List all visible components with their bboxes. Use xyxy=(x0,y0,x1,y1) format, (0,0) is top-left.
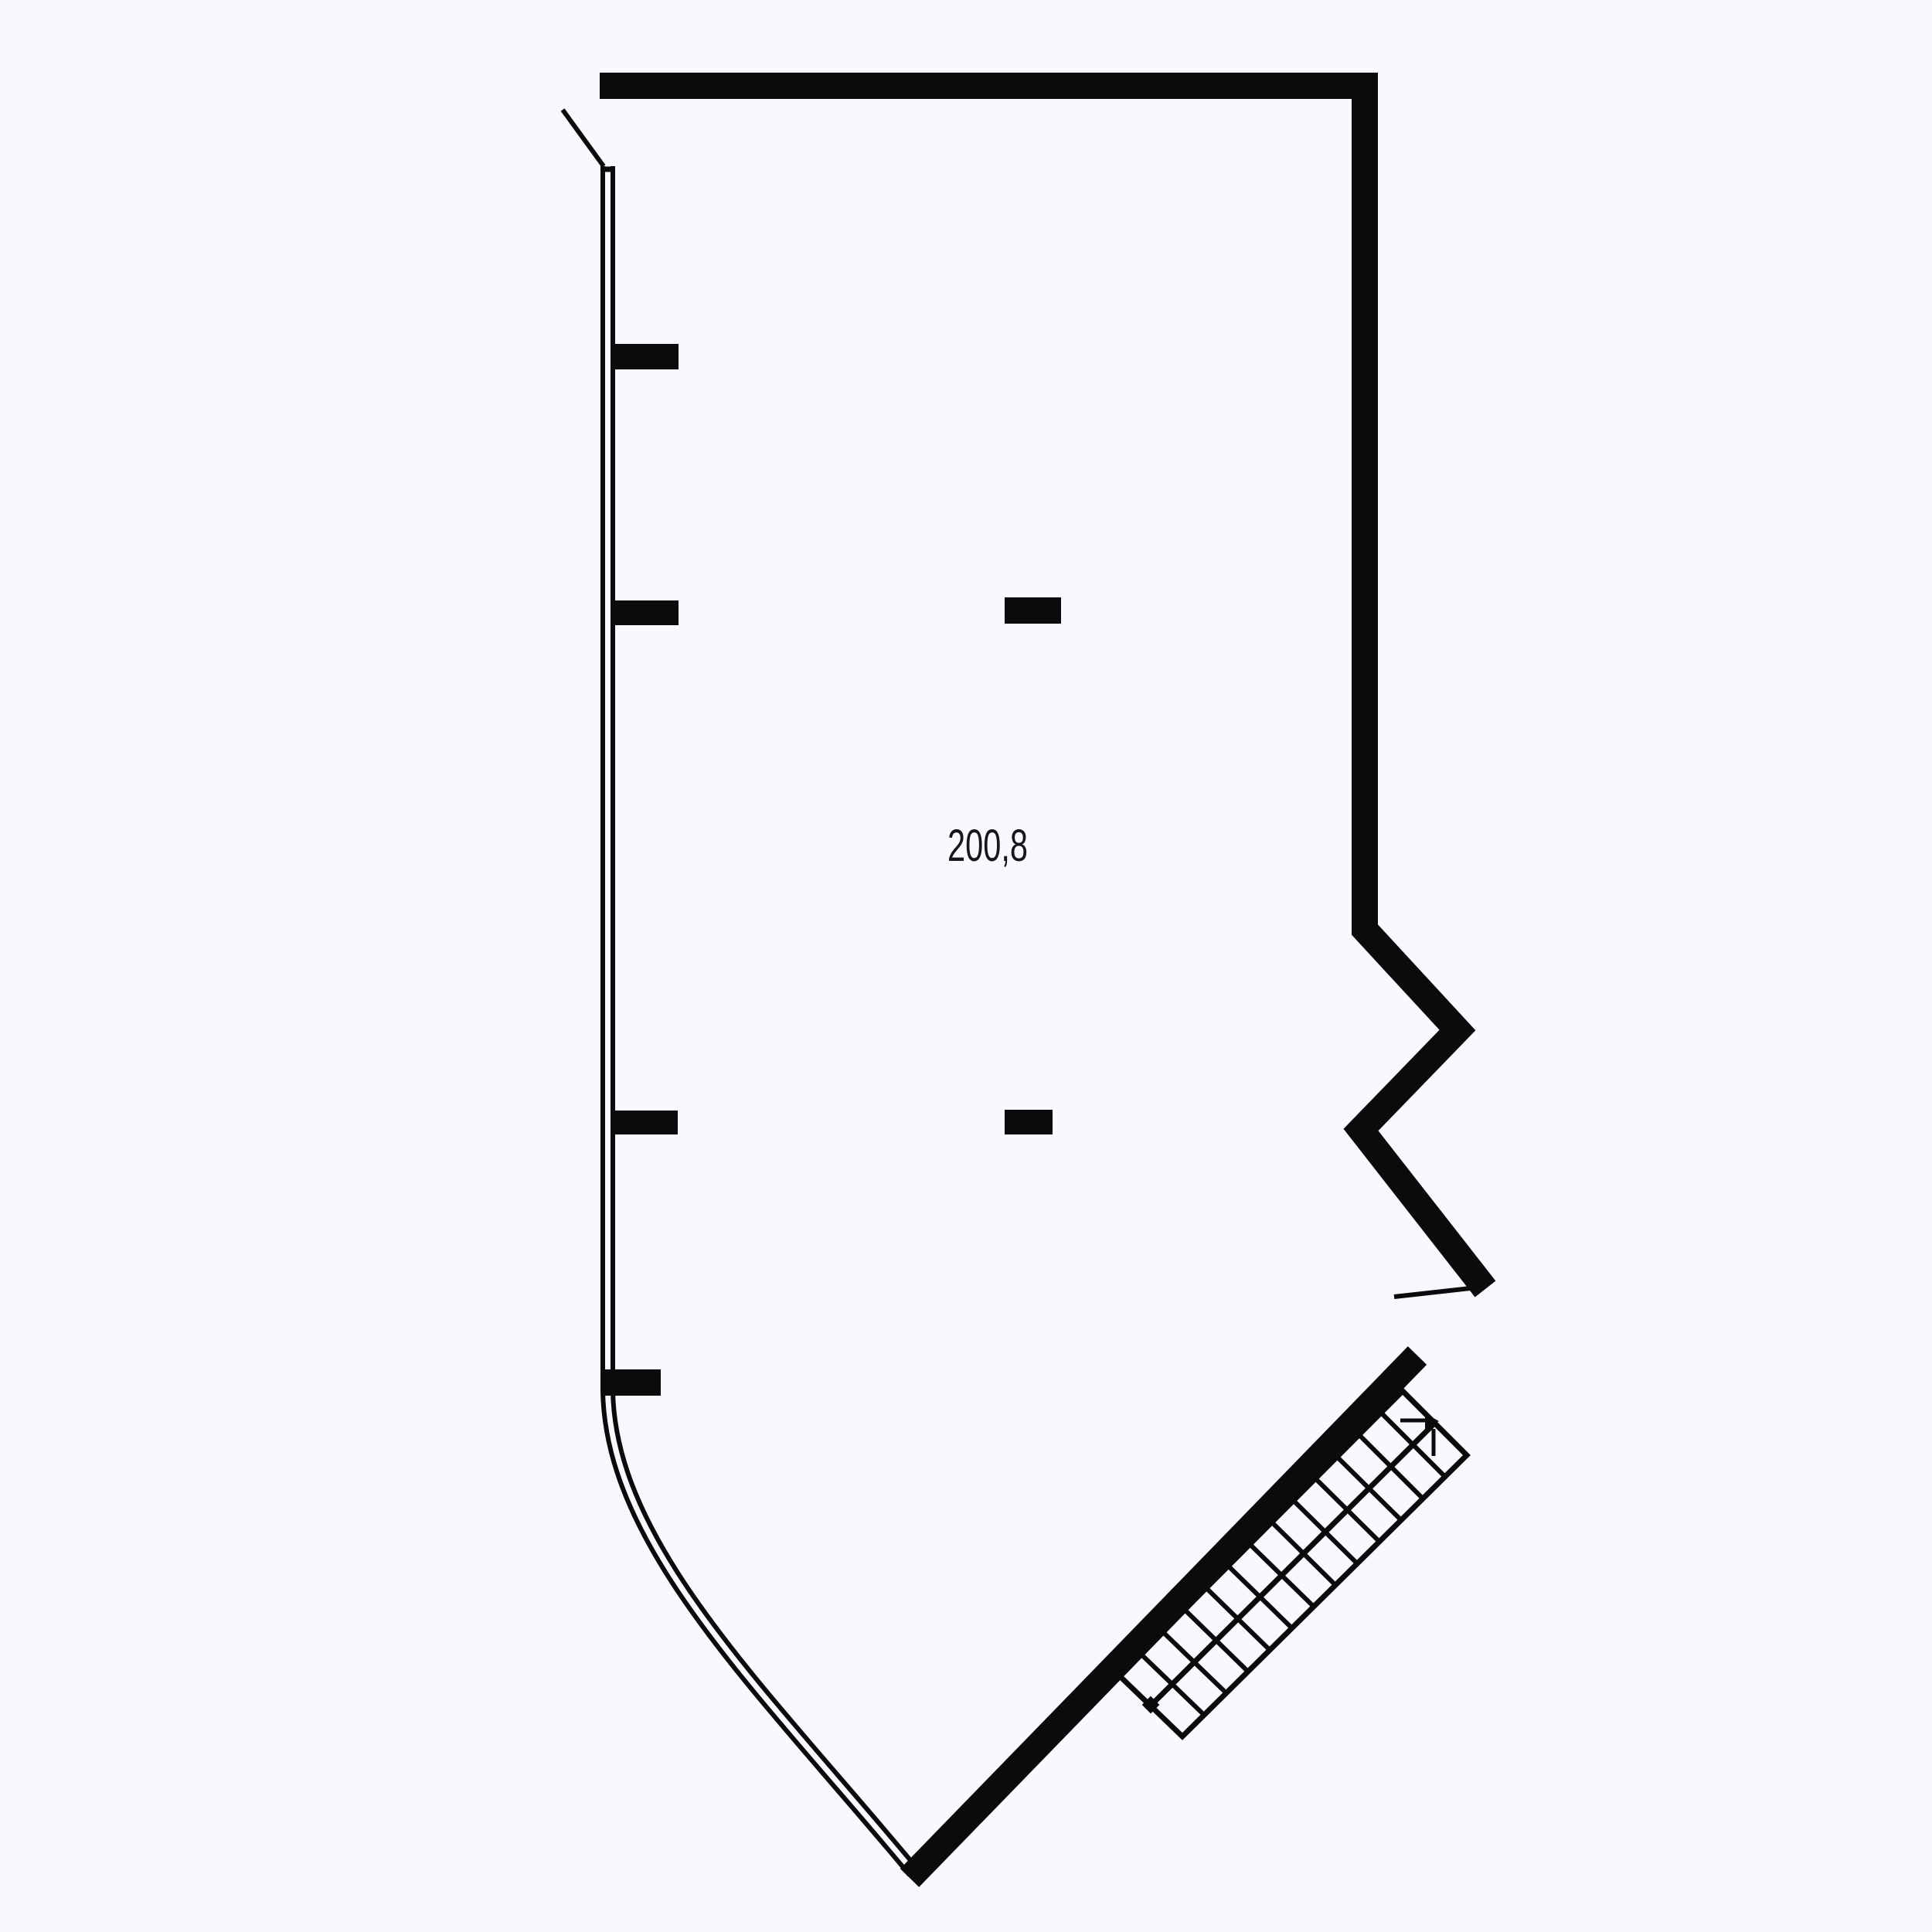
column-pier xyxy=(614,1111,678,1134)
floor-plan-page: 200,8 xyxy=(0,0,1932,1932)
column-pier xyxy=(613,600,679,625)
area-label: 200,8 xyxy=(947,821,1028,871)
column-pier xyxy=(1005,597,1061,624)
floor-plan-canvas: 200,8 xyxy=(0,0,1932,1932)
column-pier xyxy=(1005,1110,1053,1134)
column-pier xyxy=(604,1369,661,1396)
plan-background xyxy=(0,0,1932,1932)
column-pier xyxy=(613,344,679,369)
